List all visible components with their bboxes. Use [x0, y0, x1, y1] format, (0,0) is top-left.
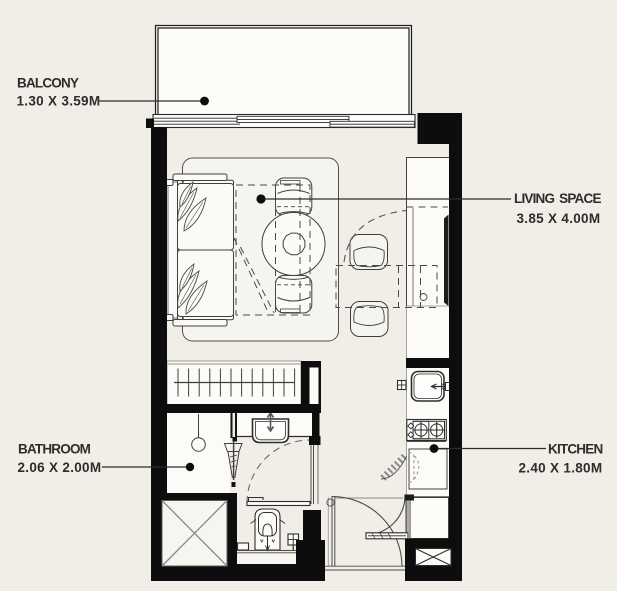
svg-text:2.06 X 2.00M: 2.06 X 2.00M — [18, 460, 102, 475]
svg-text:3.85 X 4.00M: 3.85 X 4.00M — [517, 211, 601, 226]
svg-text:BALCONY: BALCONY — [17, 76, 79, 91]
svg-text:1.30 X 3.59M: 1.30 X 3.59M — [17, 94, 101, 109]
svg-text:KITCHEN: KITCHEN — [548, 442, 602, 457]
svg-text:2.40 X 1.80M: 2.40 X 1.80M — [519, 461, 603, 476]
svg-text:LIVING SPACE: LIVING SPACE — [514, 191, 601, 206]
svg-text:BATHROOM: BATHROOM — [18, 442, 91, 457]
